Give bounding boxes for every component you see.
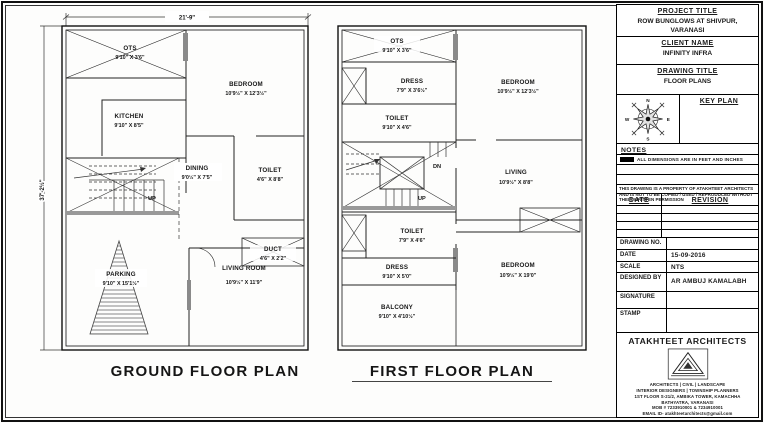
- note-row-empty: [617, 174, 758, 184]
- first-room-labels: OTS 9'10" X 3'6" DRESS 7'9" X 3'6½" BEDR…: [374, 36, 539, 320]
- first-stair-dn-label: DN: [433, 164, 441, 170]
- room-label: BALCONY: [381, 304, 414, 311]
- room-label: LIVING ROOM: [222, 265, 266, 272]
- firm-address-line: INTERIOR DESIGNERS | TOWNSHIP PLANNERS: [634, 388, 740, 394]
- revision-date-header: DATE: [617, 194, 662, 205]
- room-label: TOILET: [258, 167, 281, 174]
- svg-text:E: E: [667, 117, 670, 122]
- room-label: DUCT: [264, 246, 282, 253]
- note-text: ALL DIMENSIONS ARE IN FEET AND INCHES: [637, 157, 743, 162]
- svg-text:W: W: [625, 117, 630, 122]
- room-size: 9'10" X 5'0": [382, 274, 412, 280]
- first-staircase: [342, 142, 456, 210]
- project-title-label: PROJECT TITLE: [617, 5, 758, 15]
- scale-value: NTS: [667, 262, 758, 272]
- room-label: DINING: [186, 165, 209, 172]
- parking-ramp-hatch: [90, 241, 148, 334]
- scale-row: SCALE NTS: [617, 262, 758, 273]
- drawing-no-row: DRAWING NO.: [617, 238, 758, 250]
- compass-rose-icon: N E S W: [620, 96, 676, 142]
- svg-text:N: N: [646, 98, 650, 103]
- firm-address: ARCHITECTS | CIVIL | LANDSCAPE INTERIOR …: [634, 382, 740, 417]
- room-size: 7'9" X 4'6": [399, 238, 426, 244]
- room-size: 9'0½" X 7'5": [182, 174, 213, 181]
- room-label: TOILET: [385, 115, 408, 122]
- room-label: TOILET: [400, 228, 423, 235]
- ground-outer-walls: [62, 26, 308, 350]
- date-row: DATE 15-09-2016: [617, 250, 758, 261]
- room-label: BEDROOM: [501, 262, 535, 269]
- ground-floor-plan-title: GROUND FLOOR PLAN: [100, 363, 310, 380]
- key-plan-label: KEY PLAN: [680, 95, 758, 105]
- room-size: 10'9½" X 11'9": [226, 279, 263, 286]
- compass-rose: N E S W: [617, 95, 680, 143]
- ground-staircase: [66, 158, 179, 240]
- signature-row: SIGNATURE: [617, 292, 758, 309]
- firm-name: ATAKHTEET ARCHITECTS: [628, 336, 746, 346]
- firm-logo-icon: [666, 348, 710, 380]
- room-label: PARKING: [106, 271, 135, 278]
- firm-address-line: 1ST FLOOR S-21/2, AMBIKA TOWER, KAMACHHA: [634, 394, 740, 400]
- client-name-value: INFINITY INFRA: [617, 47, 758, 59]
- room-size: 9'10" X 3'6": [382, 48, 412, 54]
- revision-table: DATE REVISION: [617, 194, 758, 238]
- room-size: 9'10" X 3'6": [115, 55, 145, 61]
- ground-height-dimension: 37'-2½": [39, 179, 46, 200]
- firm-section: ATAKHTEET ARCHITECTS ARCHITECTS | CIVIL …: [617, 333, 758, 417]
- room-size: 9'10" X 4'6": [382, 125, 412, 131]
- room-size: 4'6" X 8'8": [257, 177, 284, 183]
- room-size: 10'9½" X 12'3½": [497, 88, 539, 95]
- date-label: DATE: [617, 250, 667, 260]
- first-partitions: [342, 30, 582, 346]
- notes-section: NOTES ALL DIMENSIONS ARE IN FEET AND INC…: [617, 144, 758, 194]
- room-label: BEDROOM: [229, 81, 263, 88]
- svg-text:S: S: [646, 136, 649, 141]
- client-name-label: CLIENT NAME: [617, 37, 758, 47]
- date-value: 15-09-2016: [667, 250, 758, 260]
- signature-value: [667, 292, 758, 308]
- signature-label: SIGNATURE: [617, 292, 667, 308]
- firm-address-line: EMAIL ID- atakhteetarchitects@gmail.com: [634, 411, 740, 417]
- room-label: DRESS: [386, 264, 408, 271]
- designed-by-label: DESIGNED BY: [617, 273, 667, 291]
- project-title-section: PROJECT TITLE ROW BUNGLOWS AT SHIVPUR, V…: [617, 5, 758, 37]
- drawing-title-section: DRAWING TITLE FLOOR PLANS: [617, 65, 758, 95]
- room-label: DRESS: [401, 78, 423, 85]
- drawing-title-label: DRAWING TITLE: [617, 65, 758, 75]
- project-title-value: ROW BUNGLOWS AT SHIVPUR, VARANASI: [617, 15, 758, 36]
- room-size: 10'9½" X 8'8": [499, 179, 533, 186]
- room-size: 7'9" X 3'6½": [397, 87, 428, 94]
- room-label: BEDROOM: [501, 79, 535, 86]
- notes-label: NOTES: [617, 144, 758, 154]
- first-floor-plan-drawing: DN UP OTS 9'10" X 3'6" DRESS 7'9" X 3'6½…: [326, 8, 598, 360]
- revision-header: REVISION: [662, 194, 758, 205]
- first-floor-plan-title: FIRST FLOOR PLAN: [352, 363, 552, 382]
- room-size: 10'9½" X 19'0": [500, 272, 537, 279]
- title-block: PROJECT TITLE ROW BUNGLOWS AT SHIVPUR, V…: [616, 4, 759, 418]
- room-size: 9'10" X 8'5": [114, 123, 144, 129]
- room-label: LIVING: [505, 169, 527, 176]
- room-size: 9'10" X 4'10½": [379, 313, 416, 320]
- room-size: 4'6" X 2'2": [260, 256, 287, 262]
- key-plan-section: N E S W KEY PLAN: [617, 95, 758, 144]
- room-label: KITCHEN: [115, 113, 144, 120]
- drawing-no-value: [667, 238, 758, 249]
- drawing-no-label: DRAWING NO.: [617, 238, 667, 249]
- drawing-title-value: FLOOR PLANS: [617, 75, 758, 87]
- revision-row-empty: [617, 213, 758, 221]
- stamp-row: STAMP: [617, 309, 758, 333]
- ground-width-dimension: 21'-9": [179, 16, 195, 22]
- first-stair-up-label: UP: [418, 196, 426, 202]
- room-label: OTS: [390, 38, 403, 45]
- stamp-value: [667, 309, 758, 332]
- room-size: 10'9½" X 12'3½": [225, 90, 267, 97]
- ground-floor-plan-drawing: 21'-9" 37'-2½": [34, 8, 318, 360]
- first-outer-walls: [338, 26, 586, 350]
- room-label: OTS: [123, 45, 136, 52]
- designed-by-row: DESIGNED BY AR AMBUJ KAMALABH: [617, 273, 758, 292]
- revision-row-empty: [617, 229, 758, 237]
- legend-swatch: [620, 157, 634, 162]
- revision-row-empty: [617, 221, 758, 229]
- stamp-label: STAMP: [617, 309, 667, 332]
- ground-stair-up-label: UP: [148, 196, 156, 202]
- key-plan-cell: KEY PLAN: [680, 95, 758, 143]
- designed-by-value: AR AMBUJ KAMALABH: [667, 273, 758, 291]
- note-row-empty: [617, 164, 758, 174]
- scale-label: SCALE: [617, 262, 667, 272]
- room-size: 9'10" X 15'1½": [103, 280, 140, 287]
- client-name-section: CLIENT NAME INFINITY INFRA: [617, 37, 758, 65]
- revision-row-empty: [617, 205, 758, 213]
